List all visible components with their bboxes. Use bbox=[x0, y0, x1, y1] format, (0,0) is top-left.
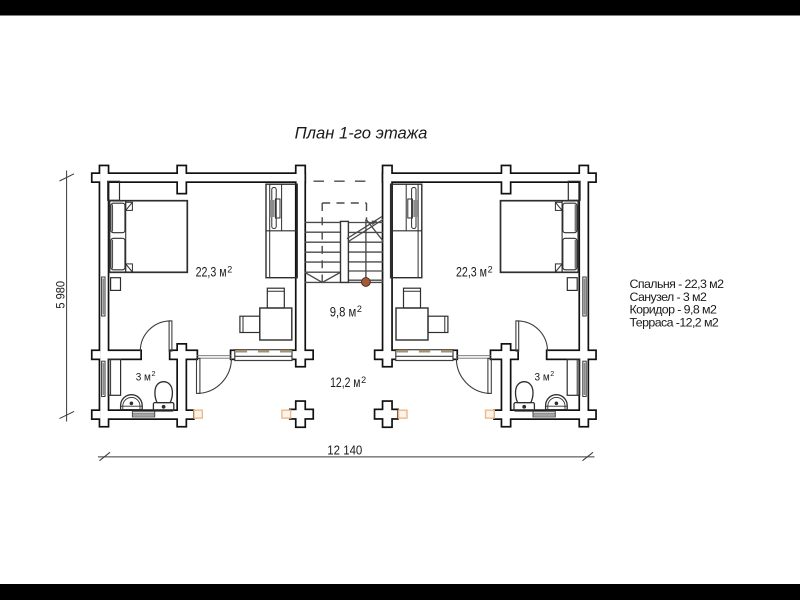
svg-text:2: 2 bbox=[357, 304, 362, 314]
svg-text:5 980: 5 980 bbox=[53, 281, 67, 309]
svg-text:2: 2 bbox=[227, 264, 232, 274]
svg-text:Коридор - 9,8 м2: Коридор - 9,8 м2 bbox=[630, 303, 717, 317]
svg-text:2: 2 bbox=[152, 369, 156, 378]
svg-text:Терраса -12,2 м2: Терраса -12,2 м2 bbox=[630, 316, 719, 330]
svg-text:2: 2 bbox=[361, 375, 366, 385]
svg-text:22,3 м: 22,3 м bbox=[456, 264, 487, 279]
svg-text:22,3 м: 22,3 м bbox=[196, 264, 227, 279]
svg-text:3 м: 3 м bbox=[535, 371, 550, 383]
svg-text:9,8 м: 9,8 м bbox=[330, 304, 357, 319]
svg-text:План 1-го этажа: План 1-го этажа bbox=[295, 125, 428, 143]
svg-text:3 м: 3 м bbox=[136, 371, 151, 383]
svg-text:2: 2 bbox=[488, 264, 493, 274]
svg-text:2: 2 bbox=[550, 369, 554, 378]
svg-text:12,2 м: 12,2 м bbox=[330, 375, 360, 390]
svg-text:12 140: 12 140 bbox=[327, 442, 362, 457]
svg-text:Санузел - 3 м2: Санузел - 3 м2 bbox=[630, 290, 707, 304]
svg-text:Спальня - 22,3 м2: Спальня - 22,3 м2 bbox=[630, 277, 725, 291]
